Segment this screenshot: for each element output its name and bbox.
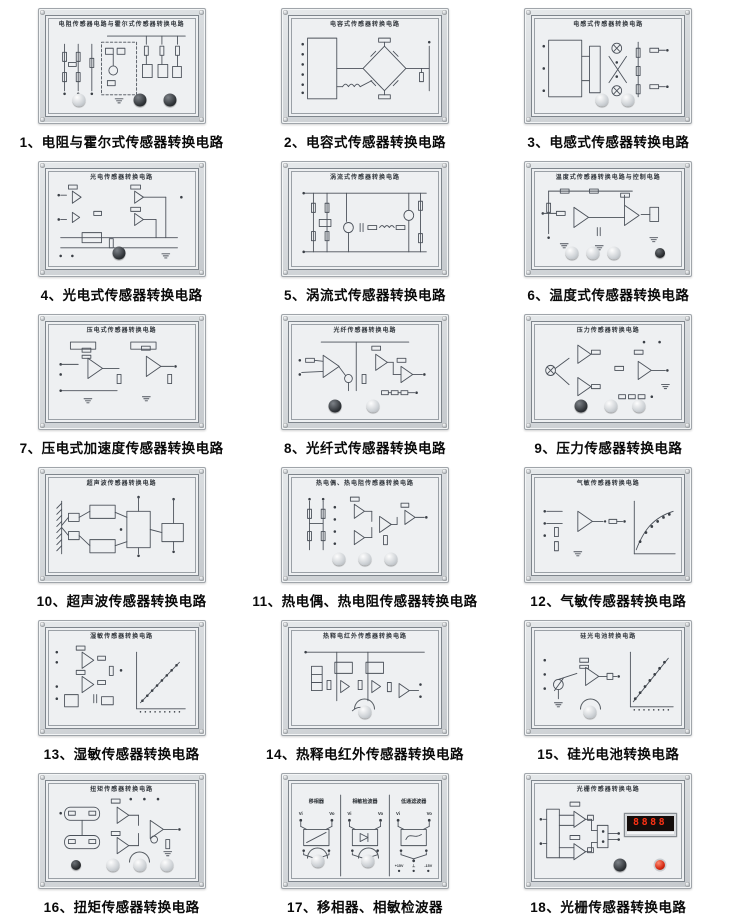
screw-icon bbox=[283, 882, 288, 887]
screw-icon bbox=[199, 316, 204, 321]
screw-icon bbox=[685, 622, 690, 627]
panel-caption: 7、压电式加速度传感器转换电路 bbox=[20, 437, 224, 457]
screw-icon bbox=[40, 882, 45, 887]
panel-face: 热电偶、热电阻传感器转换电路 bbox=[288, 474, 442, 576]
panel-face: 湿敏传感器转换电路 bbox=[45, 627, 199, 729]
panel-photo: 光电传感器转换电路 bbox=[38, 161, 206, 277]
panel-caption: 16、扭矩传感器转换电路 bbox=[44, 896, 200, 916]
svg-text:Vi: Vi bbox=[347, 811, 351, 816]
panel-photo: 硅光电池转换电路 bbox=[524, 620, 692, 736]
knob bbox=[161, 859, 174, 872]
screw-icon bbox=[40, 423, 45, 428]
screw-icon bbox=[685, 576, 690, 581]
screw-icon bbox=[526, 729, 531, 734]
knob bbox=[73, 94, 86, 107]
screw-icon bbox=[199, 622, 204, 627]
panel-title: 扭矩传感器转换电路 bbox=[46, 784, 198, 793]
panel-caption: 10、超声波传感器转换电路 bbox=[37, 590, 207, 610]
circuit-diagram bbox=[535, 640, 681, 725]
knob bbox=[362, 855, 375, 868]
screw-icon bbox=[685, 469, 690, 474]
panel-face: 光栅传感器转换电路 8888 bbox=[531, 780, 685, 882]
panel-cell: 光栅传感器转换电路 8888 18、光栅传感器转换电路 bbox=[487, 767, 730, 920]
knob bbox=[71, 860, 81, 870]
screw-icon bbox=[685, 882, 690, 887]
panel-caption: 17、移相器、相敏检波器 bbox=[287, 896, 443, 916]
knob bbox=[574, 400, 587, 413]
svg-text:Vo: Vo bbox=[427, 811, 433, 816]
knob bbox=[587, 247, 600, 260]
panel-caption: 13、湿敏传感器转换电路 bbox=[44, 743, 200, 763]
screw-icon bbox=[283, 163, 288, 168]
circuit-diagram bbox=[49, 487, 195, 572]
knob bbox=[358, 706, 371, 719]
screw-icon bbox=[442, 423, 447, 428]
screw-icon bbox=[283, 10, 288, 15]
panel-cell: 热释电红外传感器转换电路 14、热释电红外传感器转换电路 bbox=[243, 614, 486, 767]
panel-photo: 压力传感器转换电路 bbox=[524, 314, 692, 430]
panel-photo: 温度式传感器转换电路与控制电路 bbox=[524, 161, 692, 277]
panel-title: 电阻传感器电路与霍尔式传感器转换电路 bbox=[46, 19, 198, 28]
knob bbox=[614, 859, 627, 872]
panel-cell: 湿敏传感器转换电路 13、湿敏传感器转换电路 bbox=[0, 614, 243, 767]
screw-icon bbox=[283, 469, 288, 474]
screw-icon bbox=[526, 882, 531, 887]
panel-title: 温度式传感器转换电路与控制电路 bbox=[532, 172, 684, 181]
panel-title: 超声波传感器转换电路 bbox=[46, 478, 198, 487]
knob bbox=[133, 859, 146, 872]
panel-cell: 电阻传感器电路与霍尔式传感器转换电路 1、电阻与霍尔式传感器转换电路 bbox=[0, 2, 243, 155]
screw-icon bbox=[199, 270, 204, 275]
screw-icon bbox=[199, 729, 204, 734]
panel-cell: 压电式传感器转换电路 7、压电式加速度传感器转换电路 bbox=[0, 308, 243, 461]
panel-caption: 11、热电偶、热电阻传感器转换电路 bbox=[252, 590, 477, 610]
knob bbox=[106, 859, 119, 872]
panel-caption: 15、硅光电池转换电路 bbox=[537, 743, 679, 763]
screw-icon bbox=[199, 117, 204, 122]
screw-icon bbox=[685, 10, 690, 15]
display-digits: 8888 bbox=[627, 816, 674, 831]
knob bbox=[333, 553, 346, 566]
knob bbox=[584, 706, 597, 719]
screw-icon bbox=[199, 576, 204, 581]
panel-caption: 1、电阻与霍尔式传感器转换电路 bbox=[20, 131, 224, 151]
panel-caption: 4、光电式传感器转换电路 bbox=[41, 284, 203, 304]
screw-icon bbox=[283, 316, 288, 321]
knob bbox=[328, 400, 341, 413]
screw-icon bbox=[685, 163, 690, 168]
panel-photo: 气敏传感器转换电路 bbox=[524, 467, 692, 583]
panel-title: 电容式传感器转换电路 bbox=[289, 19, 441, 28]
panel-grid: 电阻传感器电路与霍尔式传感器转换电路 1、电阻与霍尔式传感器转换电路 电容式传感… bbox=[0, 0, 730, 920]
screw-icon bbox=[283, 117, 288, 122]
knob bbox=[605, 400, 618, 413]
screw-icon bbox=[283, 270, 288, 275]
panel-caption: 8、光纤式传感器转换电路 bbox=[284, 437, 446, 457]
svg-text:移相器: 移相器 bbox=[309, 797, 325, 805]
panel-photo: 光纤传感器转换电路 bbox=[281, 314, 449, 430]
knob bbox=[565, 247, 578, 260]
screw-icon bbox=[526, 423, 531, 428]
panel-title: 压电式传感器转换电路 bbox=[46, 325, 198, 334]
panel-photo: 涡流式传感器转换电路 bbox=[281, 161, 449, 277]
circuit-diagram bbox=[292, 28, 438, 113]
panel-cell: 压力传感器转换电路 9、压力传感器转换电路 bbox=[487, 308, 730, 461]
knob bbox=[133, 94, 146, 107]
panel-title: 硅光电池转换电路 bbox=[532, 631, 684, 640]
panel-cell: 热电偶、热电阻传感器转换电路 11、热电偶、热电阻传感器转换电路 bbox=[243, 461, 486, 614]
svg-text:相敏检波器: 相敏检波器 bbox=[352, 797, 378, 805]
screw-icon bbox=[685, 270, 690, 275]
panel-face: 压力传感器转换电路 bbox=[531, 321, 685, 423]
panel-face: 涡流式传感器转换电路 bbox=[288, 168, 442, 270]
screw-icon bbox=[40, 622, 45, 627]
circuit-diagram bbox=[535, 487, 681, 572]
panel-title: 湿敏传感器转换电路 bbox=[46, 631, 198, 640]
panel-caption: 14、热释电红外传感器转换电路 bbox=[266, 743, 464, 763]
circuit-diagram bbox=[49, 334, 195, 419]
screw-icon bbox=[685, 729, 690, 734]
screw-icon bbox=[442, 163, 447, 168]
screw-icon bbox=[685, 423, 690, 428]
screw-icon bbox=[442, 469, 447, 474]
svg-text:⊥: ⊥ bbox=[412, 863, 416, 868]
panel-title: 压力传感器转换电路 bbox=[532, 325, 684, 334]
panel-cell: 光纤传感器转换电路 8、光纤式传感器转换电路 bbox=[243, 308, 486, 461]
screw-icon bbox=[685, 117, 690, 122]
panel-cell: 气敏传感器转换电路 12、气敏传感器转换电路 bbox=[487, 461, 730, 614]
panel-face: 电阻传感器电路与霍尔式传感器转换电路 bbox=[45, 15, 199, 117]
panel-face: 电容式传感器转换电路 bbox=[288, 15, 442, 117]
panel-photo: 热电偶、热电阻传感器转换电路 bbox=[281, 467, 449, 583]
screw-icon bbox=[442, 117, 447, 122]
panel-cell: 移相器ViVo相敏检波器ViVo低通滤波器ViVo+15V⊥-15V 17、移相… bbox=[243, 767, 486, 920]
screw-icon bbox=[199, 10, 204, 15]
panel-photo: 超声波传感器转换电路 bbox=[38, 467, 206, 583]
screw-icon bbox=[283, 729, 288, 734]
knob bbox=[164, 94, 177, 107]
screw-icon bbox=[442, 10, 447, 15]
panel-caption: 3、电感式传感器转换电路 bbox=[527, 131, 689, 151]
panel-caption: 2、电容式传感器转换电路 bbox=[284, 131, 446, 151]
panel-caption: 12、气敏传感器转换电路 bbox=[530, 590, 686, 610]
circuit-diagram bbox=[292, 334, 438, 419]
knob bbox=[366, 400, 379, 413]
screw-icon bbox=[442, 316, 447, 321]
panel-title: 热电偶、热电阻传感器转换电路 bbox=[289, 478, 441, 487]
panel-title: 气敏传感器转换电路 bbox=[532, 478, 684, 487]
screw-icon bbox=[283, 576, 288, 581]
screw-icon bbox=[199, 469, 204, 474]
panel-photo: 压电式传感器转换电路 bbox=[38, 314, 206, 430]
panel-photo: 光栅传感器转换电路 8888 bbox=[524, 773, 692, 889]
panel-title: 电感式传感器转换电路 bbox=[532, 19, 684, 28]
svg-text:+15V: +15V bbox=[395, 864, 404, 868]
red-button bbox=[655, 860, 665, 870]
knob bbox=[608, 247, 621, 260]
knob bbox=[622, 94, 635, 107]
panel-face: 光电传感器转换电路 bbox=[45, 168, 199, 270]
screw-icon bbox=[40, 576, 45, 581]
screw-icon bbox=[199, 775, 204, 780]
circuit-diagram bbox=[292, 181, 438, 266]
panel-cell: 超声波传感器转换电路 10、超声波传感器转换电路 bbox=[0, 461, 243, 614]
circuit-diagram bbox=[49, 640, 195, 725]
screw-icon bbox=[40, 270, 45, 275]
panel-title: 光电传感器转换电路 bbox=[46, 172, 198, 181]
panel-cell: 硅光电池转换电路 15、硅光电池转换电路 bbox=[487, 614, 730, 767]
screw-icon bbox=[442, 775, 447, 780]
panel-title: 涡流式传感器转换电路 bbox=[289, 172, 441, 181]
screw-icon bbox=[442, 270, 447, 275]
screw-icon bbox=[199, 423, 204, 428]
panel-photo: 扭矩传感器转换电路 bbox=[38, 773, 206, 889]
panel-caption: 9、压力传感器转换电路 bbox=[534, 437, 682, 457]
panel-face: 电感式传感器转换电路 bbox=[531, 15, 685, 117]
panel-cell: 光电传感器转换电路 4、光电式传感器转换电路 bbox=[0, 155, 243, 308]
panel-cell: 扭矩传感器转换电路 16、扭矩传感器转换电路 bbox=[0, 767, 243, 920]
panel-title: 热释电红外传感器转换电路 bbox=[289, 631, 441, 640]
panel-photo: 电容式传感器转换电路 bbox=[281, 8, 449, 124]
screw-icon bbox=[442, 622, 447, 627]
screw-icon bbox=[199, 163, 204, 168]
panel-face: 温度式传感器转换电路与控制电路 bbox=[531, 168, 685, 270]
screw-icon bbox=[40, 163, 45, 168]
panel-face: 热释电红外传感器转换电路 bbox=[288, 627, 442, 729]
screw-icon bbox=[442, 882, 447, 887]
svg-text:Vo: Vo bbox=[329, 811, 335, 816]
panel-cell: 电感式传感器转换电路 3、电感式传感器转换电路 bbox=[487, 2, 730, 155]
screw-icon bbox=[40, 117, 45, 122]
panel-photo: 热释电红外传感器转换电路 bbox=[281, 620, 449, 736]
knob bbox=[632, 400, 645, 413]
knob bbox=[358, 553, 371, 566]
panel-caption: 18、光栅传感器转换电路 bbox=[530, 896, 686, 916]
screw-icon bbox=[526, 117, 531, 122]
svg-text:Vo: Vo bbox=[378, 811, 384, 816]
screw-icon bbox=[40, 775, 45, 780]
screw-icon bbox=[283, 775, 288, 780]
knob bbox=[655, 248, 665, 258]
panel-caption: 6、温度式传感器转换电路 bbox=[527, 284, 689, 304]
svg-text:Vi: Vi bbox=[396, 811, 400, 816]
screw-icon bbox=[685, 316, 690, 321]
panel-face: 光纤传感器转换电路 bbox=[288, 321, 442, 423]
panel-face: 硅光电池转换电路 bbox=[531, 627, 685, 729]
screw-icon bbox=[442, 729, 447, 734]
seven-segment-display: 8888 bbox=[624, 813, 677, 837]
panel-photo: 移相器ViVo相敏检波器ViVo低通滤波器ViVo+15V⊥-15V bbox=[281, 773, 449, 889]
panel-caption: 5、涡流式传感器转换电路 bbox=[284, 284, 446, 304]
panel-title: 光栅传感器转换电路 bbox=[532, 784, 684, 793]
knob bbox=[311, 855, 324, 868]
panel-photo: 湿敏传感器转换电路 bbox=[38, 620, 206, 736]
panel-photo: 电阻传感器电路与霍尔式传感器转换电路 bbox=[38, 8, 206, 124]
panel-title: 光纤传感器转换电路 bbox=[289, 325, 441, 334]
panel-face: 移相器ViVo相敏检波器ViVo低通滤波器ViVo+15V⊥-15V bbox=[288, 780, 442, 882]
panel-face: 超声波传感器转换电路 bbox=[45, 474, 199, 576]
svg-text:Vi: Vi bbox=[299, 811, 303, 816]
panel-face: 扭矩传感器转换电路 bbox=[45, 780, 199, 882]
screw-icon bbox=[526, 270, 531, 275]
panel-cell: 温度式传感器转换电路与控制电路 6、温度式传感器转换电路 bbox=[487, 155, 730, 308]
screw-icon bbox=[199, 882, 204, 887]
panel-photo: 电感式传感器转换电路 bbox=[524, 8, 692, 124]
svg-text:低通滤波器: 低通滤波器 bbox=[400, 797, 427, 805]
screw-icon bbox=[40, 729, 45, 734]
screw-icon bbox=[283, 423, 288, 428]
screw-icon bbox=[283, 622, 288, 627]
svg-text:-15V: -15V bbox=[424, 864, 432, 868]
screw-icon bbox=[40, 316, 45, 321]
panel-cell: 涡流式传感器转换电路 5、涡流式传感器转换电路 bbox=[243, 155, 486, 308]
screw-icon bbox=[442, 576, 447, 581]
panel-face: 气敏传感器转换电路 bbox=[531, 474, 685, 576]
panel-cell: 电容式传感器转换电路 2、电容式传感器转换电路 bbox=[243, 2, 486, 155]
screw-icon bbox=[40, 469, 45, 474]
knob bbox=[596, 94, 609, 107]
panel-face: 压电式传感器转换电路 bbox=[45, 321, 199, 423]
knob bbox=[384, 553, 397, 566]
screw-icon bbox=[685, 775, 690, 780]
screw-icon bbox=[40, 10, 45, 15]
screw-icon bbox=[526, 576, 531, 581]
knob bbox=[112, 247, 125, 260]
